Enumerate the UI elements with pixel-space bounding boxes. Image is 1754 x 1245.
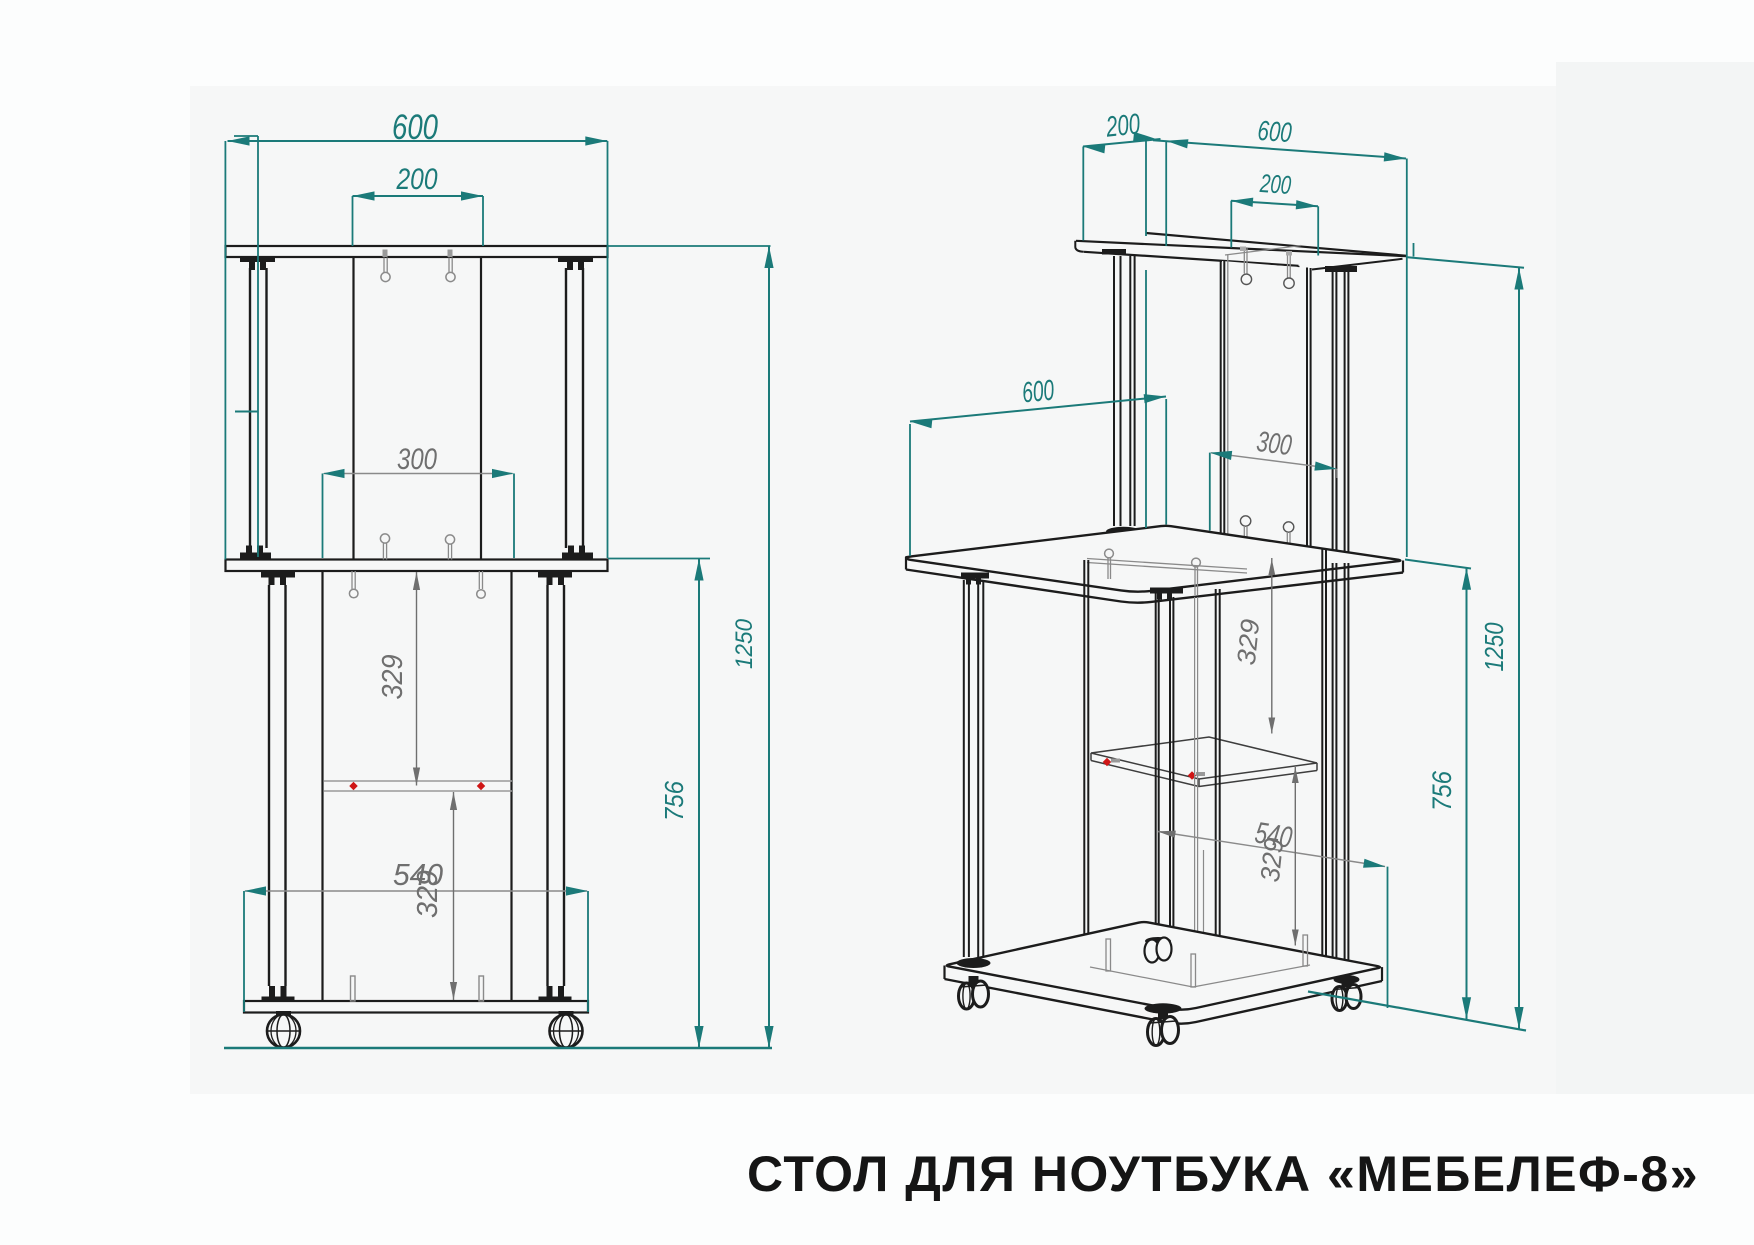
svg-text:1250: 1250 — [1479, 622, 1509, 671]
svg-text:756: 756 — [1427, 770, 1457, 811]
svg-text:200: 200 — [1104, 108, 1142, 143]
svg-text:1250: 1250 — [731, 618, 758, 669]
svg-text:600: 600 — [1257, 115, 1293, 148]
svg-text:200: 200 — [1258, 168, 1292, 200]
svg-text:756: 756 — [659, 781, 689, 821]
svg-text:329: 329 — [377, 655, 409, 700]
svg-text:329: 329 — [1231, 618, 1266, 667]
svg-text:329: 329 — [412, 870, 444, 918]
svg-text:300: 300 — [397, 443, 437, 476]
svg-text:600: 600 — [1021, 375, 1056, 410]
svg-text:600: 600 — [392, 108, 438, 147]
svg-text:329: 329 — [1255, 837, 1289, 884]
svg-text:200: 200 — [396, 163, 438, 196]
svg-text:СТОЛ ДЛЯ НОУТБУКА «МЕБЕЛЕФ-8»: СТОЛ ДЛЯ НОУТБУКА «МЕБЕЛЕФ-8» — [747, 1146, 1699, 1202]
svg-text:300: 300 — [1255, 426, 1294, 462]
